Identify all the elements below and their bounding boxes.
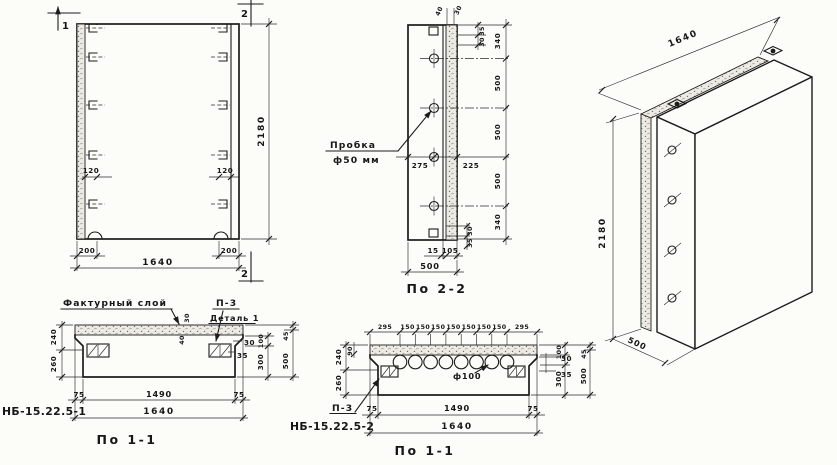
top-dim-295l: 295 [378,324,392,331]
panel-mark-1: НБ-15.22.5-1 [2,405,86,418]
bottom-recess-arcs [88,232,228,239]
section22-bottom-dims: 15 105 500 [401,241,464,276]
dim-340-top: 340 [493,33,502,50]
top-dim-150-3: 150 [431,324,446,331]
dim-500-2: 500 [493,124,502,141]
panel-outline [77,24,239,239]
p3-label: П-3 [216,298,237,309]
dim-30-top: 30 [453,4,463,16]
loop-details [87,344,231,357]
col-300: 300 [256,354,265,371]
section22-title: По 2-2 [407,281,468,296]
p3-label-2: П-3 [332,403,353,414]
technical-drawing: 120 120 1 2 2 2180 [0,0,837,465]
iso-dim-height: 2180 [598,217,608,248]
top-dim-chain: 295 150 150 150 150 150 150 150 295 [364,324,543,345]
dim-340-bottom: 340 [493,214,502,231]
dim-90: 90 [347,346,354,356]
dim-225: 225 [463,161,480,170]
marker-1: 1 [62,21,69,32]
col-500: 500 [281,353,290,370]
plug-callout-line1: Пробка [330,140,376,151]
top-dim-150-4: 150 [446,324,461,331]
top-layer-dims: 40 30 [434,4,463,24]
dim-40-top: 40 [434,5,444,17]
edge-dims: 30 35 [228,338,255,360]
dim-275: 275 [412,161,429,170]
top-dim-150-5: 150 [462,324,477,331]
dim-width: 1640 [142,258,173,268]
col-100: 100 [258,334,265,349]
dim-240: 240 [49,329,58,346]
section-1-1-nb2: 295 150 150 150 150 150 150 150 295 [290,324,596,458]
dim-75-right-2: 75 [527,404,538,413]
facing-plate-front [641,114,651,331]
col-500-2: 500 [579,368,588,385]
facing-layer-section [446,25,457,240]
dim-105: 105 [442,246,459,255]
drawing-sheet: 120 120 1 2 2 2180 [0,0,837,465]
top-dim-150-2: 150 [416,324,431,331]
col-45-2: 45 [581,349,588,359]
dim-30-side-top: 30 [479,37,486,47]
dim-40v: 40 [179,335,186,345]
iso-dim-depth: 500 [626,335,648,352]
section11b-title: По 1-1 [395,443,456,458]
dim-500-1: 500 [493,75,502,92]
dim-240-2: 240 [334,349,343,366]
dim-15: 15 [427,246,438,255]
right-dim-column: 340 500 500 500 340 [458,19,512,245]
dim-200-left: 200 [79,246,96,255]
anchor-details [86,24,230,239]
dim-75-right: 75 [233,390,244,399]
dim-2180: 2180 [241,18,277,245]
dim-200-right: 200 [221,246,238,255]
holes-f100 [393,355,514,369]
dim-120-left: 120 [83,166,100,175]
dim-1640-a: 1640 [143,407,174,417]
top-dim-150-7: 150 [492,324,507,331]
plug-callout: Пробка ф50 мм [326,111,431,166]
top-dim-150-6: 150 [477,324,492,331]
top-recess [429,27,438,35]
isometric-view: 1640 2180 500 [598,17,812,366]
nb1-bottom-dims: 75 1490 75 1640 [68,337,250,421]
body-outline [75,335,243,377]
marker-2-bottom: 2 [241,269,248,280]
top-dim-150-1: 150 [400,324,415,331]
dim-260-2: 260 [334,375,343,392]
dim-500-3: 500 [493,173,502,190]
col-100-2: 100 [556,345,563,360]
dim-height: 2180 [257,115,267,146]
section11a-title: По 1-1 [97,432,158,447]
dim-1490-2: 1490 [444,403,470,413]
dim-75-left: 75 [73,390,84,399]
dim-75-left-2: 75 [366,404,377,413]
edge-30: 30 [244,338,255,347]
col-45: 45 [283,331,290,341]
hole-label: ф100 [453,371,481,381]
dim-1490: 1490 [146,389,172,399]
section-1-1-nb1: Фактурный слой П-3 Деталь 1 240 260 30 4… [2,298,299,447]
edge-35: 35 [237,351,248,360]
dim-120-right: 120 [217,166,234,175]
dim-500-bottom: 500 [420,261,440,271]
bottom-dims: 200 200 1640 [70,241,246,271]
dim-35-side-bot: 35 [467,238,474,248]
col-300-2: 300 [554,371,563,388]
facing-band-2 [370,345,537,355]
section-2-2: Пробка ф50 мм 275 225 340 500 500 500 34… [326,4,512,296]
iso-dim-length: 1640 [667,29,700,50]
plug-callout-line2: ф50 мм [333,155,380,166]
dim-30v: 30 [184,313,191,323]
factur-label: Фактурный слой [63,298,167,309]
front-view: 120 120 1 2 2 2180 [48,0,277,282]
marker-2-top: 2 [241,9,248,20]
bottom-recess [429,229,438,237]
panel-mark-2: НБ-15.22.5-2 [290,420,374,433]
dim-30-side-bot: 30 [467,226,474,236]
dim-260: 260 [49,356,58,373]
dim-35-side-top: 35 [479,26,486,36]
dim-120: 120 120 [82,166,240,180]
top-dim-295r: 295 [515,324,529,331]
detail-label: Деталь 1 [210,313,259,323]
dim-1640-b: 1640 [441,422,472,432]
facing-layer-strip [77,24,85,239]
